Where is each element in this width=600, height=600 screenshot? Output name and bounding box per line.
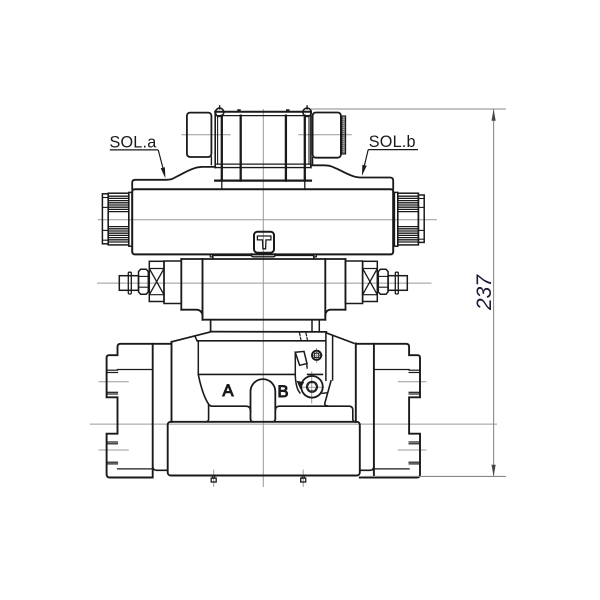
svg-text:A: A bbox=[222, 382, 233, 400]
svg-text:SOL.a: SOL.a bbox=[110, 133, 157, 151]
svg-text:B: B bbox=[277, 383, 288, 401]
svg-text:SOL.b: SOL.b bbox=[369, 133, 416, 151]
svg-text:237: 237 bbox=[473, 274, 496, 311]
